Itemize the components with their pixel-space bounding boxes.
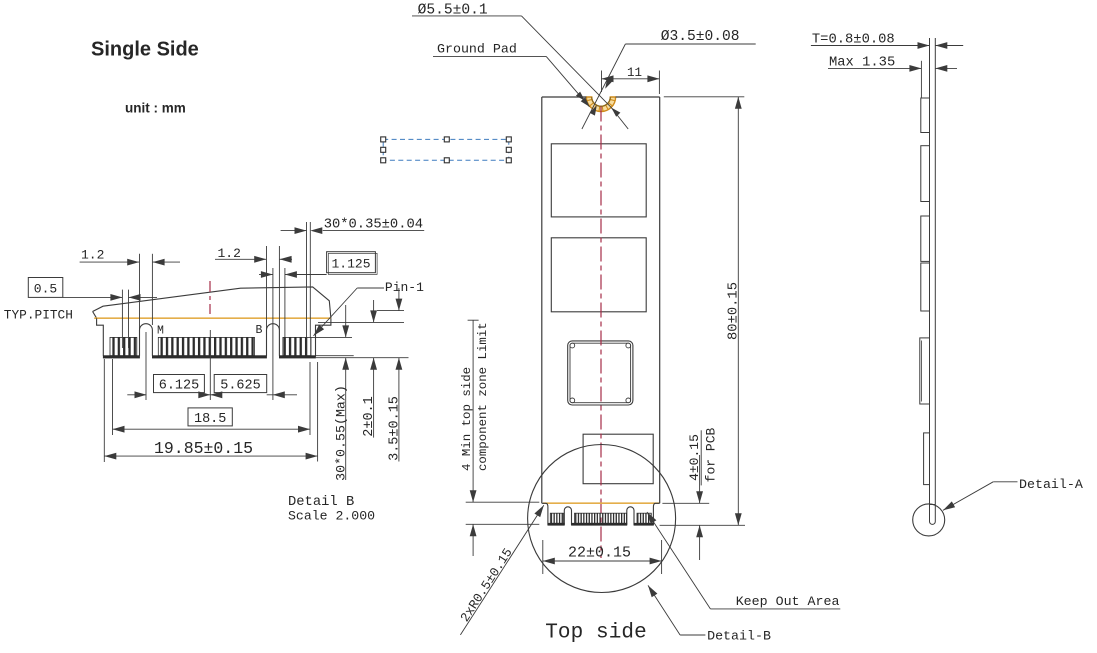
- svg-text:Keep Out Area: Keep Out Area: [736, 594, 840, 609]
- svg-text:component zone Limit: component zone Limit: [476, 322, 490, 471]
- svg-text:M: M: [157, 325, 164, 338]
- svg-text:19.85±0.15: 19.85±0.15: [154, 439, 253, 458]
- svg-text:6.125: 6.125: [159, 379, 200, 394]
- svg-text:Ground Pad: Ground Pad: [437, 42, 517, 57]
- svg-text:4±0.15: 4±0.15: [687, 434, 702, 481]
- svg-text:5.625: 5.625: [220, 379, 261, 394]
- svg-text:for PCB: for PCB: [704, 427, 719, 482]
- svg-text:2±0.1: 2±0.1: [362, 396, 377, 437]
- svg-text:80±0.15: 80±0.15: [727, 282, 742, 340]
- svg-text:18.5: 18.5: [194, 412, 226, 427]
- svg-text:22±0.15: 22±0.15: [568, 545, 631, 562]
- svg-text:Scale 2.000: Scale 2.000: [288, 509, 375, 524]
- svg-text:B: B: [256, 324, 263, 337]
- svg-text:1.125: 1.125: [331, 257, 370, 272]
- svg-text:30*0.55(Max): 30*0.55(Max): [333, 385, 348, 481]
- svg-text:2xR0.5±0.15: 2xR0.5±0.15: [457, 546, 515, 625]
- svg-text:Pin-1: Pin-1: [385, 280, 424, 295]
- svg-text:Top side: Top side: [545, 622, 647, 645]
- svg-text:4 Min top side: 4 Min top side: [460, 367, 474, 471]
- svg-text:1.2: 1.2: [218, 246, 241, 261]
- svg-text:11: 11: [627, 66, 642, 80]
- svg-text:unit : mm: unit : mm: [125, 101, 186, 116]
- svg-text:Single Side: Single Side: [91, 39, 199, 61]
- svg-text:Detail-A: Detail-A: [1019, 477, 1083, 492]
- svg-text:0.5: 0.5: [34, 282, 57, 297]
- svg-text:TYP.PITCH: TYP.PITCH: [4, 308, 73, 323]
- svg-text:1.2: 1.2: [81, 247, 104, 262]
- svg-text:Detail-B: Detail-B: [707, 629, 771, 644]
- svg-text:Ø3.5±0.08: Ø3.5±0.08: [661, 29, 740, 45]
- svg-text:3.5±0.15: 3.5±0.15: [388, 396, 403, 461]
